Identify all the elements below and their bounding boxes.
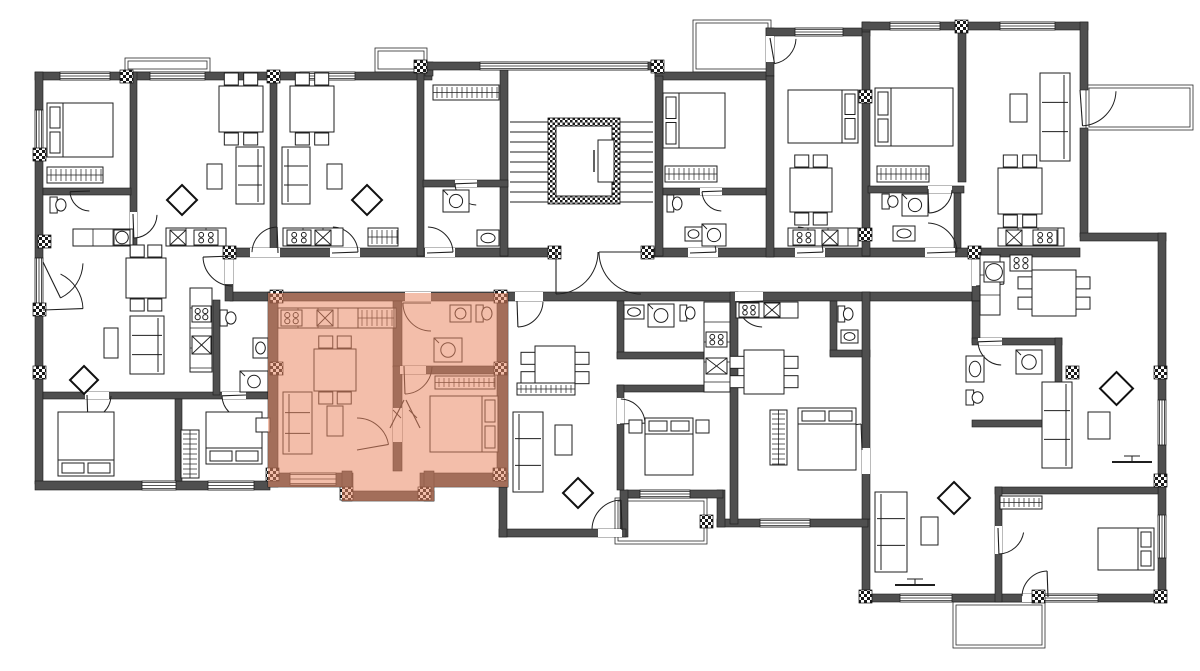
floor-plan-page <box>0 0 1200 671</box>
stairwell <box>510 118 653 204</box>
floor-plan-canvas <box>0 0 1200 671</box>
highlighted-apartment[interactable] <box>268 293 508 501</box>
